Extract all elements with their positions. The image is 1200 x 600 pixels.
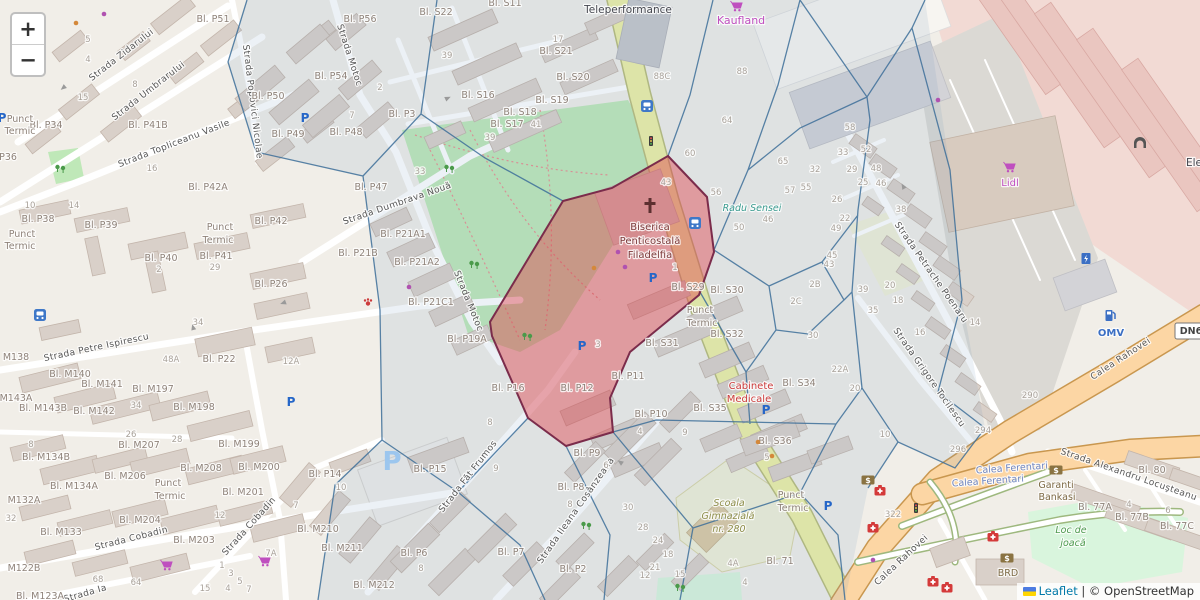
- building-label: Bl. S36: [758, 436, 791, 447]
- dot-orange-icon: [770, 454, 775, 459]
- house-number: 5: [764, 453, 769, 463]
- building-label: Bl. M143B: [19, 403, 67, 414]
- building-label: Bl. M212: [353, 580, 395, 591]
- building-label: Bl. P50: [251, 91, 284, 102]
- dot-purple-icon: [407, 285, 412, 290]
- building-label: Bl. M141: [81, 379, 123, 390]
- dot-purple-icon: [623, 265, 628, 270]
- house-number: 56: [711, 188, 722, 198]
- building-label: Bl. M123A: [16, 591, 65, 600]
- poi-label: Punct: [9, 229, 36, 240]
- building-label: Bl. 77C: [1160, 521, 1194, 532]
- house-number: 4: [85, 55, 90, 65]
- poi-label: Biserica: [630, 222, 670, 233]
- svg-text:$: $: [1004, 554, 1010, 563]
- svg-text:$: $: [1053, 466, 1059, 475]
- building-label: Bl. P21C1: [408, 297, 454, 308]
- house-number: 28: [172, 435, 183, 445]
- house-number: 7: [246, 585, 251, 595]
- house-number: 34: [193, 318, 204, 328]
- house-number: 7: [349, 111, 354, 121]
- house-number: 15: [675, 570, 686, 580]
- building-label: Bl. P21B: [338, 248, 378, 259]
- leaflet-link[interactable]: Leaflet: [1039, 584, 1078, 598]
- poi-label: Gimnazială: [701, 511, 754, 522]
- bus-icon: [689, 217, 701, 229]
- poi-label: Termic: [154, 491, 186, 502]
- house-number: 322: [885, 510, 901, 520]
- building-label: Bl. M203: [173, 535, 215, 546]
- building-label: Bl. P14: [308, 469, 341, 480]
- house-number: 88: [737, 67, 748, 77]
- house-number: 2B: [809, 280, 820, 290]
- house-number: 4: [1126, 500, 1131, 510]
- charging-icon: [1082, 253, 1091, 264]
- house-number: 8: [132, 80, 137, 90]
- poi-label: Lidl: [1001, 178, 1018, 189]
- building-label: Bl. P26: [254, 279, 287, 290]
- poi-label: BRD: [998, 568, 1018, 579]
- building-label: Bl. 77A: [1078, 502, 1112, 513]
- house-number: 10: [336, 483, 347, 493]
- building-label: Bl. M208: [180, 463, 222, 474]
- building-label: Bl. P39: [84, 220, 117, 231]
- svg-text:P: P: [824, 499, 833, 513]
- house-number: 33: [838, 148, 849, 158]
- house-number: 43: [824, 260, 835, 270]
- dot-purple-icon: [871, 558, 876, 563]
- dot-orange-icon: [756, 440, 761, 445]
- building-label: Bl. P56: [343, 14, 376, 25]
- building-label: Bl. S19: [535, 95, 568, 106]
- poi-label: Loc de: [1055, 525, 1086, 536]
- house-number: 294: [975, 426, 991, 436]
- poi-label: joacă: [1058, 538, 1085, 549]
- building-label: Bl. S16: [461, 90, 494, 101]
- building-label: M132A: [8, 495, 41, 506]
- house-number: 1: [672, 263, 677, 273]
- building-label: Bl. P6: [401, 548, 428, 559]
- house-number: 15: [78, 93, 89, 103]
- building-label: Bl. M210: [297, 524, 339, 535]
- poi-label: nr. 280: [712, 524, 745, 535]
- building-label: Bl. M197: [132, 384, 174, 395]
- poi-label: Punct: [778, 490, 805, 501]
- building-label: Bl. M211: [321, 543, 363, 554]
- building-label: Bl. S29: [671, 282, 704, 293]
- building-label: Bl. P11: [611, 371, 644, 382]
- building-label: P36: [0, 152, 17, 163]
- svg-text:P: P: [762, 403, 771, 417]
- house-number: 6: [1165, 506, 1170, 516]
- house-number: 16: [147, 164, 158, 174]
- building-label: Bl. S21: [539, 46, 572, 57]
- building-label: Bl. P10: [634, 409, 667, 420]
- house-number: 8: [28, 440, 33, 450]
- house-number: 52: [861, 145, 872, 155]
- house-number: 9: [493, 464, 498, 474]
- poi-label: Punct: [7, 114, 34, 125]
- building-label: Bl. S22: [419, 7, 452, 18]
- poi-label: Kaufland: [717, 14, 765, 27]
- house-number: 7: [293, 501, 298, 511]
- attribution-separator: |: [1078, 584, 1089, 598]
- building-label: Bl. S20: [556, 72, 589, 83]
- building-label: Bl. P41: [199, 251, 232, 262]
- house-number: 30: [808, 331, 819, 341]
- building-label: Bl. M207: [118, 440, 160, 451]
- house-number: 32: [6, 514, 17, 524]
- poi-label: DN6: [1180, 326, 1200, 337]
- building-label: Bl. S30: [710, 285, 743, 296]
- building-label: Bl. P22: [202, 354, 235, 365]
- svg-text:P: P: [649, 271, 658, 285]
- house-number: 39: [485, 133, 496, 143]
- house-number: 33: [415, 167, 426, 177]
- house-number: 15: [200, 584, 211, 594]
- poi-label: Ele: [1186, 157, 1200, 169]
- dot-orange-icon: [592, 266, 597, 271]
- building-label: Bl. S17: [490, 119, 523, 130]
- poi-label: Termic: [777, 503, 809, 514]
- poi-label: Penticostală: [620, 236, 681, 247]
- house-number: 43: [661, 178, 672, 188]
- house-number: 8: [418, 564, 423, 574]
- poi-label: Cabinete: [729, 381, 774, 392]
- building-label: Bl. P16: [491, 383, 524, 394]
- house-number: 14: [970, 318, 981, 328]
- house-number: 64: [131, 578, 142, 588]
- house-number: 2: [377, 83, 382, 93]
- map[interactable]: Strada ZidaruluiStrada UmbraruluiStrada …: [0, 0, 1200, 600]
- poi-label: Filadelfia: [628, 250, 672, 261]
- zoom-in-button[interactable]: +: [12, 14, 44, 45]
- building-label: Bl. P42A: [188, 182, 228, 193]
- map-tiles: Strada ZidaruluiStrada UmbraruluiStrada …: [0, 0, 1200, 600]
- bus-icon: [641, 100, 653, 112]
- house-number: 18: [663, 550, 674, 560]
- building-label: Bl. S18: [503, 107, 536, 118]
- poi-label: Termic: [4, 241, 36, 252]
- poi-label: Scoala: [713, 498, 745, 509]
- house-number: 34: [131, 401, 142, 411]
- building-label: Bl. P51: [196, 14, 229, 25]
- house-number: 290: [1022, 391, 1038, 401]
- house-number: 4: [742, 578, 747, 588]
- house-number: 22: [840, 214, 851, 224]
- house-number: 88C: [654, 72, 671, 82]
- building-label: Bl. M198: [173, 402, 215, 413]
- house-number: 64: [722, 116, 733, 126]
- poi-label: Punct: [687, 305, 714, 316]
- building-label: Bl. P48: [329, 127, 362, 138]
- svg-text:$: $: [865, 476, 871, 485]
- house-number: 41: [531, 120, 542, 130]
- poi-label: Teleperformance: [583, 4, 672, 16]
- building-label: Bl. M134B: [22, 452, 70, 463]
- house-number: 26: [126, 430, 137, 440]
- house-number: 8: [567, 500, 572, 510]
- house-number: 39: [858, 285, 869, 295]
- building-label: Bl. P42: [254, 216, 287, 227]
- parking-icon: P: [301, 111, 310, 125]
- poi-label: Termic: [4, 126, 36, 137]
- poi-label: Punct: [207, 222, 234, 233]
- house-number: 46: [763, 215, 774, 225]
- building-label: Bl. P7: [498, 547, 525, 558]
- money-icon: $: [862, 476, 875, 486]
- house-number: 49: [831, 224, 842, 234]
- poi-label: Bankasi: [1038, 492, 1075, 503]
- house-number: 26: [832, 195, 843, 205]
- house-number: 21: [650, 563, 661, 573]
- building-label: Bl. P21A1: [380, 229, 426, 240]
- house-number: 3: [228, 569, 233, 579]
- traffic-light-icon: [914, 503, 918, 513]
- building-label: Bl. 80: [1138, 465, 1165, 476]
- house-number: 46: [876, 179, 887, 189]
- house-number: 29: [210, 263, 221, 273]
- zoom-control: + −: [10, 12, 46, 77]
- house-number: 48: [871, 164, 882, 174]
- house-number: 35: [868, 306, 879, 316]
- building-label: Bl. P38: [21, 214, 54, 225]
- building-label: Bl. M206: [104, 471, 146, 482]
- building-label: Bl. P2: [560, 564, 587, 575]
- building-label: Bl. P41B: [128, 120, 168, 131]
- house-number: 9: [682, 428, 687, 438]
- dot-purple-icon: [936, 98, 941, 103]
- house-number: 1: [219, 561, 224, 571]
- money-icon: $: [1050, 466, 1063, 476]
- building-label: Bl. S11: [488, 0, 521, 9]
- building-label: Bl. M142: [73, 406, 115, 417]
- building-label: Bl. P54: [314, 71, 347, 82]
- building-label: Bl. S35: [693, 403, 726, 414]
- house-number: 2: [156, 265, 161, 275]
- parking-icon: P: [824, 499, 833, 513]
- ukraine-flag-icon: [1023, 587, 1036, 596]
- house-number: 30: [623, 503, 634, 513]
- building-label: Bl. M201: [222, 487, 264, 498]
- zoom-out-button[interactable]: −: [12, 45, 44, 75]
- house-number: 10: [25, 201, 36, 211]
- house-number: 14: [69, 201, 80, 211]
- building-label: Bl. S31: [645, 338, 678, 349]
- house-number: 6: [603, 461, 608, 471]
- house-number: 28: [638, 523, 649, 533]
- house-number: 3: [595, 340, 600, 350]
- svg-text:P: P: [0, 111, 7, 125]
- building-label: Bl. P9: [574, 448, 601, 459]
- house-number: 10: [880, 430, 891, 440]
- building-label: Bl. S32: [710, 329, 743, 340]
- building-label: Bl. P49: [271, 129, 304, 140]
- building-label: Bl. M204: [119, 515, 161, 526]
- svg-text:P: P: [301, 111, 310, 125]
- building-label: Bl. M134A: [50, 481, 99, 492]
- house-number: 4A: [727, 559, 738, 569]
- house-number: 17: [553, 35, 564, 45]
- svg-text:P: P: [578, 339, 587, 353]
- house-number: 5: [237, 577, 242, 587]
- house-number: 12: [640, 571, 651, 581]
- poi-label: Garanti: [1038, 480, 1073, 491]
- poi-label: OMV: [1098, 328, 1124, 339]
- building-label: Bl. P40: [144, 253, 177, 264]
- building-label: Bl. P47: [354, 182, 387, 193]
- attribution-bar: Leaflet | © OpenStreetMap: [1017, 583, 1200, 600]
- dot-purple-icon: [616, 250, 621, 255]
- house-number: 68: [93, 575, 104, 585]
- poi-label: Radu Sensei: [723, 203, 782, 214]
- building-label: Bl. P19A: [447, 334, 487, 345]
- building-label: Bl. 71: [766, 556, 793, 567]
- house-number: 20: [885, 281, 896, 291]
- building-label: Bl. P21A2: [394, 257, 440, 268]
- house-number: 39: [442, 51, 453, 61]
- dot-orange-icon: [74, 21, 79, 26]
- house-number: 38: [896, 205, 907, 215]
- dot-purple-icon: [102, 12, 107, 17]
- house-number: 32: [810, 165, 821, 175]
- svg-text:P: P: [287, 395, 296, 409]
- building-label: Bl. P3: [389, 109, 416, 120]
- parking-big-icon: P: [382, 447, 401, 477]
- house-number: 12A: [283, 357, 300, 367]
- building-label: M138: [3, 352, 29, 363]
- house-number: 4: [225, 584, 230, 594]
- poi-label: Punct: [155, 478, 182, 489]
- osm-attribution[interactable]: © OpenStreetMap: [1089, 584, 1194, 598]
- poi-label: Termic: [202, 235, 234, 246]
- traffic-light-icon: [649, 136, 653, 146]
- svg-text:P: P: [382, 447, 401, 477]
- house-number: 2C: [790, 297, 801, 307]
- house-number: 24: [653, 536, 664, 546]
- house-number: 8: [487, 418, 492, 428]
- house-number: 20: [850, 384, 861, 394]
- parking-icon: P: [649, 271, 658, 285]
- house-number: 5: [85, 35, 90, 45]
- house-number: 55: [801, 183, 812, 193]
- building-label: Bl. M199: [218, 439, 260, 450]
- parking-icon: P: [287, 395, 296, 409]
- house-number: 4: [637, 427, 642, 437]
- house-number: 18: [893, 296, 904, 306]
- house-number: 58: [845, 123, 856, 133]
- building-label: Bl. M133: [40, 527, 82, 538]
- building-label: Bl. M200: [238, 462, 280, 473]
- bus-icon: [34, 309, 46, 321]
- house-number: 296: [950, 445, 966, 455]
- parking-icon: P: [578, 339, 587, 353]
- building-label: M122B: [8, 563, 41, 574]
- house-number: 16: [915, 328, 926, 338]
- house-number: 22A: [832, 365, 849, 375]
- building-label: Bl. P15: [413, 464, 446, 475]
- poi-label: Termic: [686, 318, 718, 329]
- parking-icon: P: [762, 403, 771, 417]
- house-number: 50: [734, 223, 745, 233]
- house-number: 12: [215, 511, 226, 521]
- house-number: 48A: [163, 355, 180, 365]
- house-number: 60: [685, 149, 696, 159]
- building-label: Bl. P12: [560, 383, 593, 394]
- building-label: Bl. P8: [558, 482, 585, 493]
- building-label: Bl. 77B: [1115, 512, 1149, 523]
- house-number: 25: [858, 178, 869, 188]
- money-icon: $: [1001, 554, 1014, 564]
- building-label: Bl. S34: [782, 378, 815, 389]
- house-number: 29: [847, 165, 858, 175]
- house-number: 65: [778, 157, 789, 167]
- house-number: 57: [785, 186, 796, 196]
- parking-icon: P: [0, 111, 7, 125]
